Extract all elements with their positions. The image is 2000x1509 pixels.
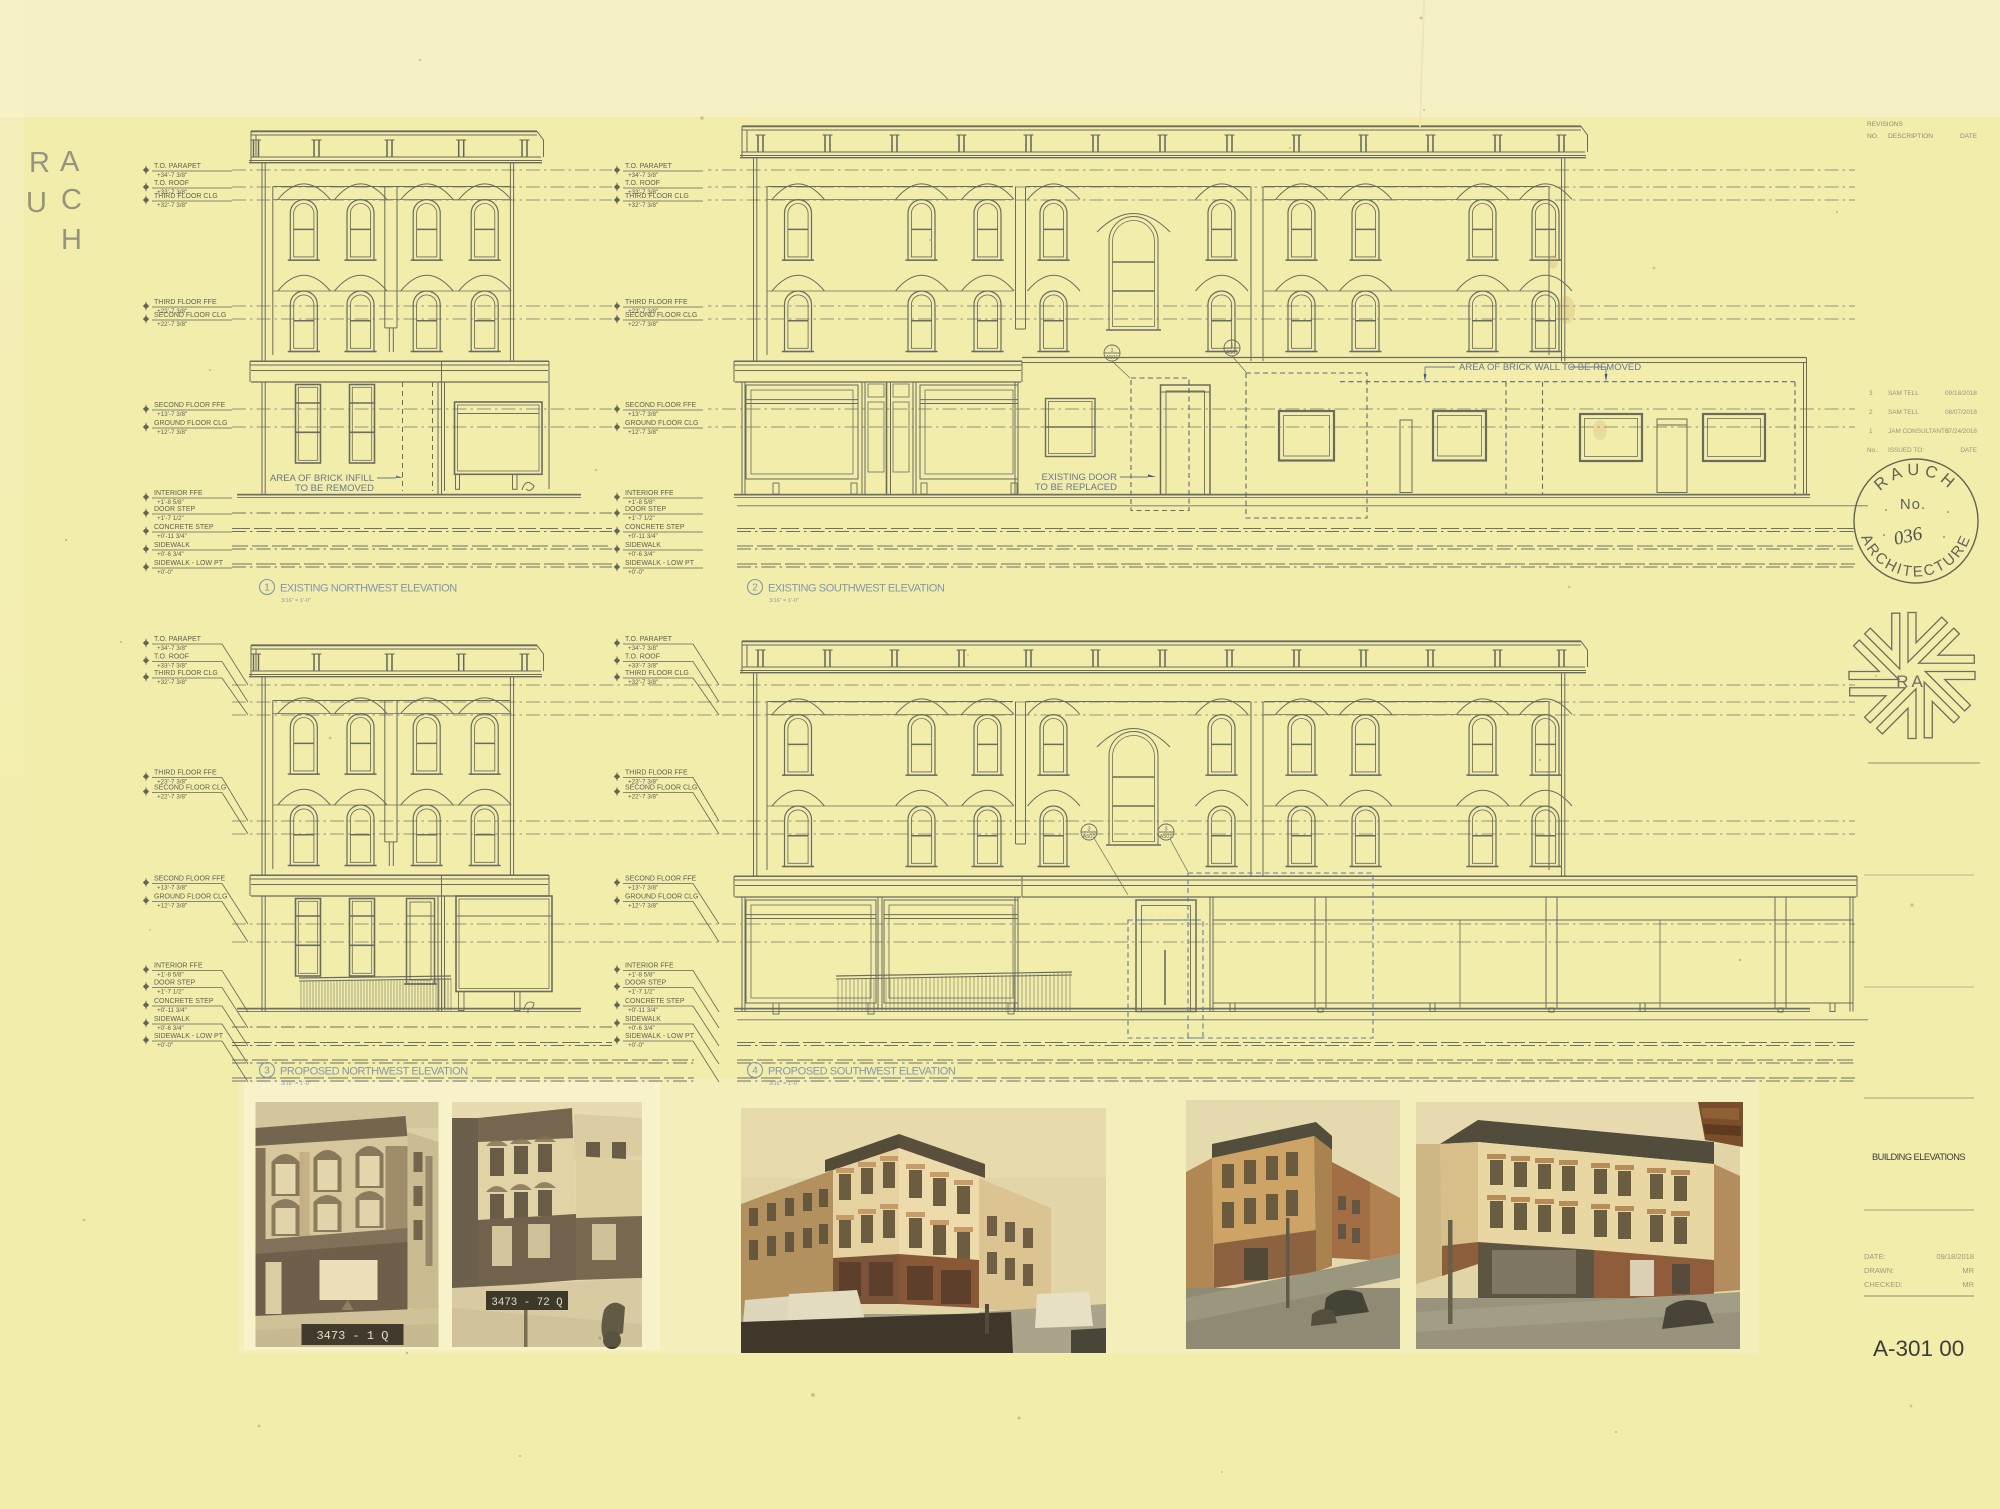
svg-text:GROUND FLOOR CLG: GROUND FLOOR CLG bbox=[625, 894, 699, 901]
svg-text:A-301 00: A-301 00 bbox=[1873, 1336, 1964, 1361]
svg-text:+32'-7 3/8": +32'-7 3/8" bbox=[628, 679, 658, 686]
svg-text:C: C bbox=[61, 184, 82, 216]
svg-text:+12'-7 3/8": +12'-7 3/8" bbox=[157, 903, 187, 910]
svg-text:THIRD FLOOR CLG: THIRD FLOOR CLG bbox=[625, 670, 689, 677]
svg-text:1: 1 bbox=[1110, 348, 1113, 354]
svg-text:+34'-7 3/8": +34'-7 3/8" bbox=[628, 172, 658, 179]
svg-text:09/18/2018: 09/18/2018 bbox=[1936, 1252, 1974, 1261]
svg-text:+0'-11 3/4": +0'-11 3/4" bbox=[628, 533, 658, 540]
svg-text:+12'-7 3/8": +12'-7 3/8" bbox=[157, 429, 187, 436]
svg-text:+13'-7 3/8": +13'-7 3/8" bbox=[157, 885, 187, 892]
svg-text:CONCRETE STEP: CONCRETE STEP bbox=[625, 524, 685, 531]
svg-text:2: 2 bbox=[1869, 409, 1873, 416]
svg-text:+0'-11 3/4": +0'-11 3/4" bbox=[157, 1007, 187, 1014]
svg-text:BUILDING ELEVATIONS: BUILDING ELEVATIONS bbox=[1872, 1152, 1965, 1162]
svg-text:THIRD FLOOR FFE: THIRD FLOOR FFE bbox=[625, 770, 688, 777]
svg-text:+34'-7 3/8": +34'-7 3/8" bbox=[157, 645, 187, 652]
svg-text:JAM CONSULTANTS: JAM CONSULTANTS bbox=[1888, 428, 1949, 435]
svg-text:+12'-7 3/8": +12'-7 3/8" bbox=[628, 429, 658, 436]
svg-text:+13'-7 3/8": +13'-7 3/8" bbox=[628, 885, 658, 892]
svg-text:07/24/2018: 07/24/2018 bbox=[1945, 428, 1977, 435]
svg-text:+22'-7 3/8": +22'-7 3/8" bbox=[628, 794, 658, 801]
svg-text:SECOND FLOOR CLG: SECOND FLOOR CLG bbox=[154, 785, 226, 792]
svg-text:+0'-6 3/4": +0'-6 3/4" bbox=[628, 551, 655, 558]
svg-text:+0'-6 3/4": +0'-6 3/4" bbox=[628, 1025, 655, 1032]
svg-text:SECOND FLOOR FFE: SECOND FLOOR FFE bbox=[625, 402, 697, 409]
svg-text:+0'-6 3/4": +0'-6 3/4" bbox=[157, 551, 184, 558]
svg-text:3/16" = 1'-0": 3/16" = 1'-0" bbox=[281, 598, 311, 604]
svg-text:+1'-7 1/2": +1'-7 1/2" bbox=[157, 989, 184, 996]
svg-text:INTERIOR FFE: INTERIOR FFE bbox=[154, 963, 203, 970]
svg-text:EXISTING SOUTHWEST ELEVATION: EXISTING SOUTHWEST ELEVATION bbox=[768, 583, 945, 595]
svg-text:T.O. PARAPET: T.O. PARAPET bbox=[625, 163, 673, 170]
svg-text:INTERIOR FFE: INTERIOR FFE bbox=[625, 963, 674, 970]
svg-text:+1'-7 1/2": +1'-7 1/2" bbox=[628, 989, 655, 996]
svg-text:+0'-11 3/4": +0'-11 3/4" bbox=[157, 533, 187, 540]
svg-text:THIRD FLOOR FFE: THIRD FLOOR FFE bbox=[625, 299, 688, 306]
svg-text:A: A bbox=[60, 146, 80, 178]
svg-text:T.O. ROOF: T.O. ROOF bbox=[625, 180, 660, 187]
svg-text:+0'-0": +0'-0" bbox=[628, 1042, 644, 1049]
svg-text:SIDEWALK - LOW PT: SIDEWALK - LOW PT bbox=[625, 1033, 695, 1040]
svg-text:+0'-0": +0'-0" bbox=[157, 1042, 173, 1049]
svg-text:U: U bbox=[26, 187, 47, 219]
svg-text:SIDEWALK: SIDEWALK bbox=[154, 542, 190, 549]
svg-text:SECOND FLOOR CLG: SECOND FLOOR CLG bbox=[625, 785, 697, 792]
svg-text:+1'-8 5/8": +1'-8 5/8" bbox=[157, 972, 184, 979]
svg-text:THIRD FLOOR CLG: THIRD FLOOR CLG bbox=[154, 670, 218, 677]
svg-text:3: 3 bbox=[264, 1066, 270, 1077]
svg-text:T.O. ROOF: T.O. ROOF bbox=[154, 180, 189, 187]
svg-text:A501: A501 bbox=[1083, 834, 1096, 840]
svg-text:T.O. PARAPET: T.O. PARAPET bbox=[625, 636, 673, 643]
svg-text:CONCRETE STEP: CONCRETE STEP bbox=[154, 524, 214, 531]
svg-text:PROPOSED NORTHWEST ELEVATION: PROPOSED NORTHWEST ELEVATION bbox=[280, 1066, 468, 1078]
svg-text:3: 3 bbox=[1087, 827, 1090, 833]
svg-text:+22'-7 3/8": +22'-7 3/8" bbox=[157, 794, 187, 801]
svg-text:3/16" = 1'-0": 3/16" = 1'-0" bbox=[769, 598, 799, 604]
svg-text:+22'-7 3/8": +22'-7 3/8" bbox=[628, 321, 658, 328]
svg-text:+0'-6 3/4": +0'-6 3/4" bbox=[157, 1025, 184, 1032]
svg-text:+1'-8 5/8": +1'-8 5/8" bbox=[628, 972, 655, 979]
svg-text:3: 3 bbox=[1164, 827, 1167, 833]
svg-text:No.: No. bbox=[1900, 496, 1926, 513]
svg-text:TO BE REMOVED: TO BE REMOVED bbox=[295, 483, 374, 494]
svg-text:T.O. ROOF: T.O. ROOF bbox=[154, 654, 189, 661]
svg-text:RA: RA bbox=[1896, 672, 1926, 691]
svg-text:SECOND FLOOR FFE: SECOND FLOOR FFE bbox=[154, 402, 226, 409]
svg-text:+34'-7 3/8": +34'-7 3/8" bbox=[628, 645, 658, 652]
svg-text:4: 4 bbox=[752, 1066, 758, 1077]
svg-text:SECOND FLOOR FFE: SECOND FLOOR FFE bbox=[154, 876, 226, 883]
svg-text:SIDEWALK - LOW PT: SIDEWALK - LOW PT bbox=[625, 560, 695, 567]
svg-text:SIDEWALK: SIDEWALK bbox=[625, 1016, 661, 1023]
svg-text:PROPOSED SOUTHWEST ELEVATION: PROPOSED SOUTHWEST ELEVATION bbox=[768, 1066, 956, 1078]
svg-text:GROUND FLOOR CLG: GROUND FLOOR CLG bbox=[625, 420, 699, 427]
svg-text:MR: MR bbox=[1962, 1266, 1974, 1275]
svg-text:RAUCH: RAUCH bbox=[1871, 461, 1961, 494]
svg-text:AREA OF BRICK WALL TO BE REMOV: AREA OF BRICK WALL TO BE REMOVED bbox=[1459, 362, 1641, 373]
svg-text:SIDEWALK - LOW PT: SIDEWALK - LOW PT bbox=[154, 1033, 224, 1040]
svg-text:+33'-7 3/8": +33'-7 3/8" bbox=[628, 663, 658, 670]
svg-text:DESCRIPTION: DESCRIPTION bbox=[1888, 133, 1933, 140]
svg-text:+1'-7 1/2": +1'-7 1/2" bbox=[157, 515, 184, 522]
svg-text:INTERIOR FFE: INTERIOR FFE bbox=[154, 490, 203, 497]
svg-text:DOOR STEP: DOOR STEP bbox=[625, 980, 667, 987]
svg-text:A501: A501 bbox=[1106, 355, 1119, 361]
svg-text:REVISIONS: REVISIONS bbox=[1867, 121, 1904, 128]
svg-text:THIRD FLOOR CLG: THIRD FLOOR CLG bbox=[154, 193, 218, 200]
svg-text:T.O. ROOF: T.O. ROOF bbox=[625, 654, 660, 661]
svg-text:CONCRETE STEP: CONCRETE STEP bbox=[625, 998, 685, 1005]
svg-text:DATE:: DATE: bbox=[1864, 1252, 1886, 1261]
svg-text:SIDEWALK: SIDEWALK bbox=[154, 1016, 190, 1023]
svg-text:+0'-11 3/4": +0'-11 3/4" bbox=[628, 1007, 658, 1014]
svg-text:1: 1 bbox=[1869, 428, 1873, 435]
svg-text:2: 2 bbox=[752, 583, 758, 594]
svg-text:SECOND FLOOR CLG: SECOND FLOOR CLG bbox=[625, 312, 697, 319]
svg-text:DOOR STEP: DOOR STEP bbox=[154, 506, 196, 513]
svg-text:GROUND FLOOR CLG: GROUND FLOOR CLG bbox=[154, 894, 228, 901]
svg-text:+1'-8 5/8": +1'-8 5/8" bbox=[628, 499, 655, 506]
svg-text:DATE: DATE bbox=[1960, 447, 1977, 454]
svg-text:+0'-0": +0'-0" bbox=[628, 569, 644, 576]
svg-text:+34'-7 3/8": +34'-7 3/8" bbox=[157, 172, 187, 179]
svg-text:H: H bbox=[61, 224, 82, 256]
svg-text:R: R bbox=[29, 147, 50, 179]
svg-text:SAM TELL: SAM TELL bbox=[1888, 409, 1919, 416]
svg-text:THIRD FLOOR CLG: THIRD FLOOR CLG bbox=[625, 193, 689, 200]
svg-text:+13'-7 3/8": +13'-7 3/8" bbox=[157, 411, 187, 418]
svg-text:+12'-7 3/8": +12'-7 3/8" bbox=[628, 903, 658, 910]
svg-text:DOOR STEP: DOOR STEP bbox=[154, 980, 196, 987]
svg-text:TO BE REPLACED: TO BE REPLACED bbox=[1035, 482, 1117, 493]
svg-text:No.:: No.: bbox=[1867, 447, 1879, 454]
svg-text:+13'-7 3/8": +13'-7 3/8" bbox=[628, 411, 658, 418]
svg-text:CONCRETE STEP: CONCRETE STEP bbox=[154, 998, 214, 1005]
svg-text:08/07/2018: 08/07/2018 bbox=[1945, 409, 1977, 416]
svg-text:MR: MR bbox=[1962, 1280, 1974, 1289]
svg-text:+22'-7 3/8": +22'-7 3/8" bbox=[157, 321, 187, 328]
svg-text:T.O. PARAPET: T.O. PARAPET bbox=[154, 636, 202, 643]
svg-text:EXISTING NORTHWEST ELEVATION: EXISTING NORTHWEST ELEVATION bbox=[280, 583, 457, 595]
svg-text:A501: A501 bbox=[1226, 350, 1239, 356]
svg-text:T.O. PARAPET: T.O. PARAPET bbox=[154, 163, 202, 170]
svg-text:DATE: DATE bbox=[1960, 133, 1978, 140]
svg-text:ISSUED TO:: ISSUED TO: bbox=[1888, 447, 1924, 454]
svg-text:DOOR STEP: DOOR STEP bbox=[625, 506, 667, 513]
svg-text:SIDEWALK - LOW PT: SIDEWALK - LOW PT bbox=[154, 560, 224, 567]
svg-text:+1'-7 1/2": +1'-7 1/2" bbox=[628, 515, 655, 522]
svg-text:SECOND FLOOR CLG: SECOND FLOOR CLG bbox=[154, 312, 226, 319]
svg-text:09/18/2018: 09/18/2018 bbox=[1945, 390, 1977, 397]
svg-text:+33'-7 3/8": +33'-7 3/8" bbox=[157, 663, 187, 670]
svg-text:SIDEWALK: SIDEWALK bbox=[625, 542, 661, 549]
svg-text:INTERIOR FFE: INTERIOR FFE bbox=[625, 490, 674, 497]
svg-text:CHECKED:: CHECKED: bbox=[1864, 1280, 1903, 1289]
svg-text:3/16" = 1'-0": 3/16" = 1'-0" bbox=[769, 1081, 799, 1087]
svg-text:DRAWN:: DRAWN: bbox=[1864, 1266, 1894, 1275]
svg-text:GROUND FLOOR CLG: GROUND FLOOR CLG bbox=[154, 420, 228, 427]
svg-text:036: 036 bbox=[1892, 523, 1925, 550]
svg-text:1: 1 bbox=[1230, 343, 1233, 349]
svg-text:+32'-7 3/8": +32'-7 3/8" bbox=[157, 202, 187, 209]
svg-text:SECOND FLOOR FFE: SECOND FLOOR FFE bbox=[625, 876, 697, 883]
svg-text:3/16" = 1'-0": 3/16" = 1'-0" bbox=[281, 1081, 311, 1087]
svg-text:+32'-7 3/8": +32'-7 3/8" bbox=[157, 679, 187, 686]
svg-text:+32'-7 3/8": +32'-7 3/8" bbox=[628, 202, 658, 209]
svg-text:THIRD FLOOR FFE: THIRD FLOOR FFE bbox=[154, 299, 217, 306]
svg-text:+0'-0": +0'-0" bbox=[157, 569, 173, 576]
svg-text:THIRD FLOOR FFE: THIRD FLOOR FFE bbox=[154, 770, 217, 777]
svg-text:1: 1 bbox=[264, 583, 270, 594]
svg-text:NO.: NO. bbox=[1867, 133, 1879, 140]
svg-text:A501: A501 bbox=[1160, 834, 1173, 840]
svg-text:3: 3 bbox=[1869, 390, 1873, 397]
svg-text:+1'-8 5/8": +1'-8 5/8" bbox=[157, 499, 184, 506]
svg-text:SAM TELL: SAM TELL bbox=[1888, 390, 1919, 397]
